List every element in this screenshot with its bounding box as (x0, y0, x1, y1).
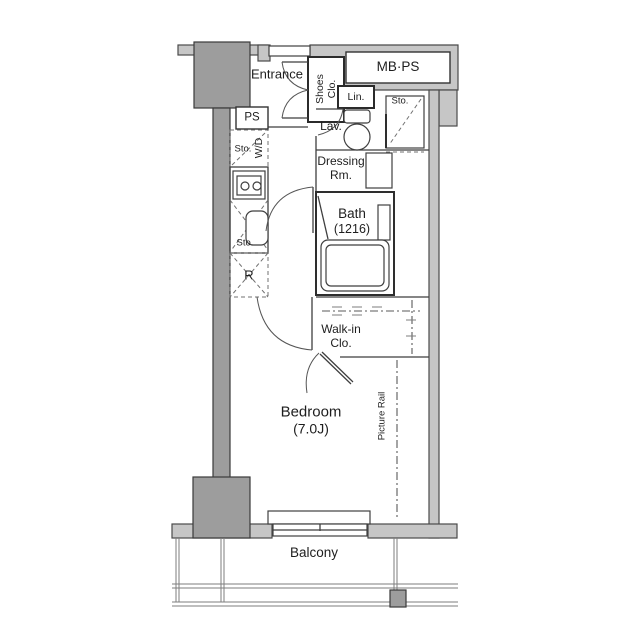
label-shoes-closet: ShoesClo. (314, 74, 338, 104)
label-storage-kitchen: Sto. (235, 145, 252, 156)
bath-door-line (318, 196, 328, 239)
label-walk-in-closet: Walk-inClo. (321, 323, 361, 351)
label-storage-lavatory: Sto. (392, 97, 409, 108)
balcony-drain (390, 590, 406, 607)
entry-door (269, 46, 310, 56)
label-bedroom: Bedroom(7.0J) (281, 403, 342, 436)
stove (233, 171, 265, 199)
label-meter-box: MB·PS (377, 59, 420, 75)
washer-space (366, 153, 392, 188)
label-lavatory: Lav. (320, 120, 342, 134)
label-linen: Lin. (348, 91, 365, 103)
bath-shelf (378, 205, 390, 240)
label-bath: Bath(1216) (334, 206, 370, 236)
bathtub (321, 240, 389, 291)
label-pipe-space: PS (244, 111, 259, 124)
label-storage-sink: Sto. (237, 239, 254, 250)
label-entrance: Entrance (251, 68, 303, 83)
label-refrigerator: R (244, 269, 253, 284)
floor-plan: Entrance ShoesClo. MB·PS Lin. Lav. Sto. … (0, 0, 640, 640)
label-dressing-room: DressingRm. (317, 155, 364, 183)
window (268, 511, 370, 536)
label-balcony: Balcony (290, 545, 338, 561)
toilet (344, 110, 370, 150)
label-washer-dryer: W/D (253, 138, 265, 158)
label-picture-rail: Picture Rail (378, 392, 389, 441)
